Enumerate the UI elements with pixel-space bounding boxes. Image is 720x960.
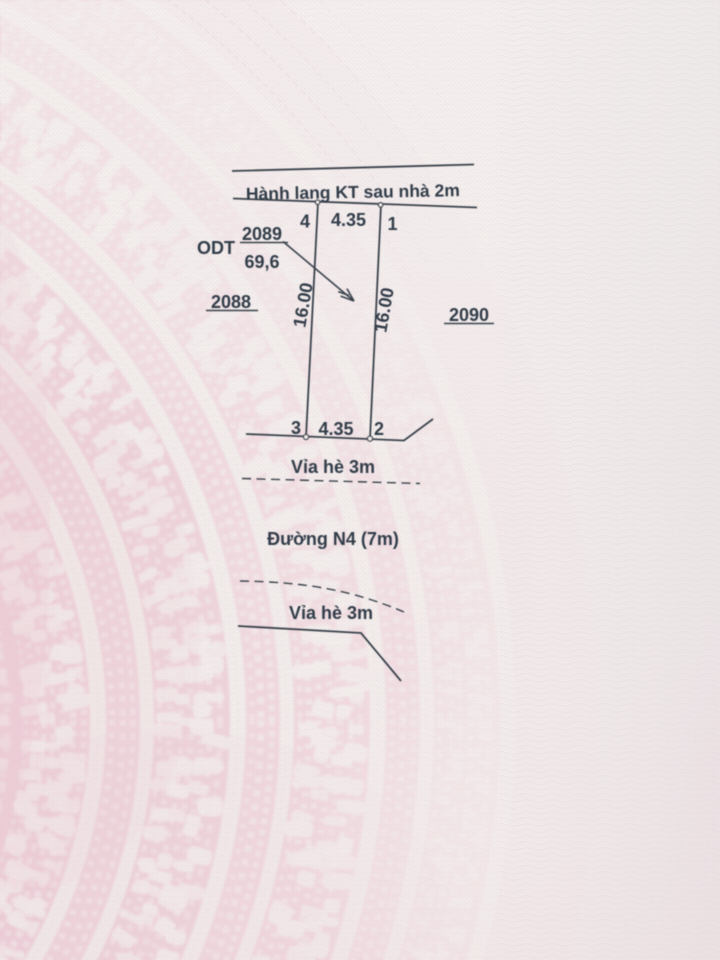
svg-text:3: 3 [291, 418, 301, 438]
svg-text:Đường N4 (7m): Đường N4 (7m) [267, 529, 399, 549]
svg-text:ODT: ODT [197, 238, 235, 258]
svg-text:2088: 2088 [211, 292, 251, 312]
svg-text:Vỉa hè 3m: Vỉa hè 3m [291, 457, 375, 477]
svg-text:4.35: 4.35 [331, 210, 366, 230]
svg-text:2089: 2089 [242, 224, 282, 244]
svg-text:Vỉa hè 3m: Vỉa hè 3m [289, 603, 373, 623]
svg-text:1: 1 [388, 214, 398, 234]
svg-text:69,6: 69,6 [244, 252, 279, 272]
svg-text:2: 2 [374, 419, 384, 439]
svg-text:Hành lang KT sau nhà 2m: Hành lang KT sau nhà 2m [246, 180, 460, 204]
svg-text:4.35: 4.35 [318, 419, 353, 439]
svg-text:2090: 2090 [449, 305, 489, 325]
svg-text:4: 4 [300, 212, 310, 232]
